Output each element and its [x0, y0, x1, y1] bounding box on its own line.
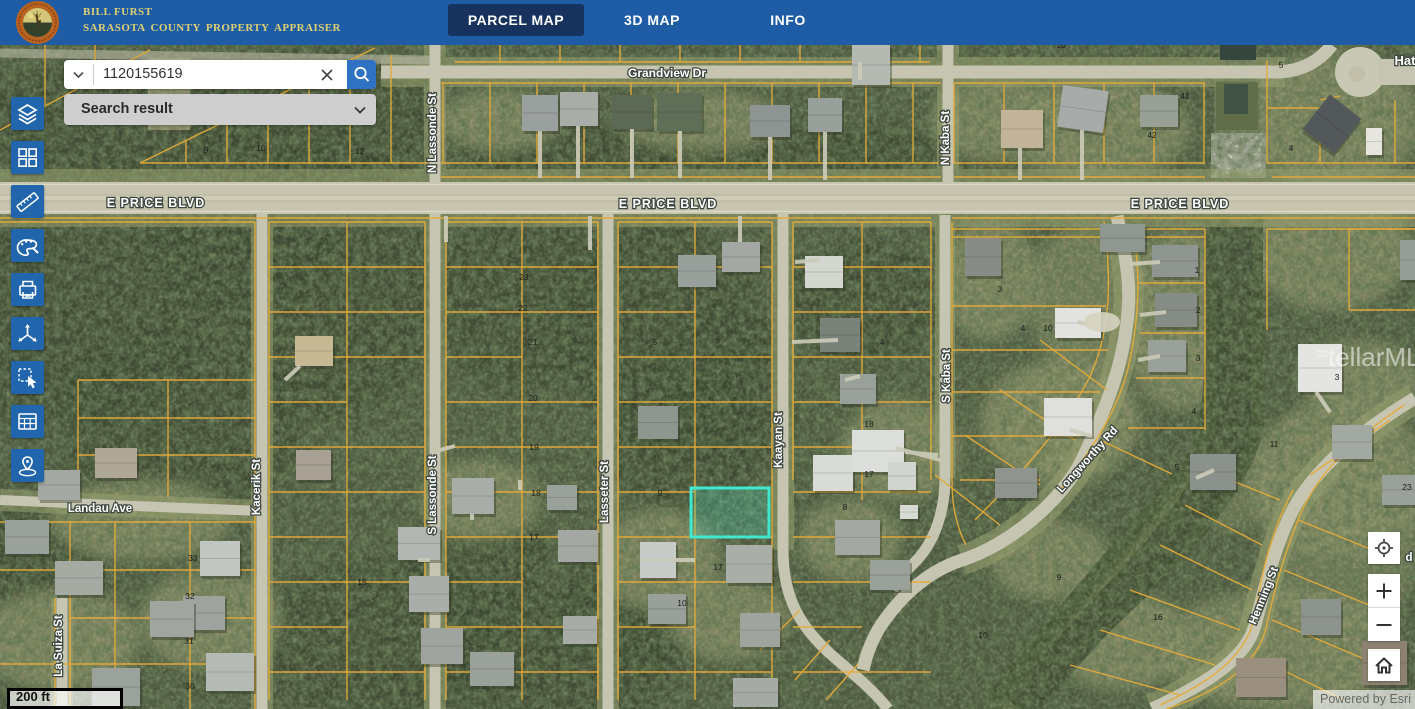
svg-text:E PRICE BLVD: E PRICE BLVD	[1131, 197, 1230, 211]
svg-text:3: 3	[1335, 372, 1340, 382]
svg-text:S Lassonde St: S Lassonde St	[427, 455, 439, 534]
svg-text:4: 4	[1192, 406, 1197, 416]
svg-text:8: 8	[843, 502, 848, 512]
svg-text:22: 22	[518, 303, 528, 313]
svg-text:E PRICE BLVD: E PRICE BLVD	[619, 197, 718, 211]
svg-text:5: 5	[1279, 60, 1284, 70]
svg-text:41: 41	[1180, 91, 1190, 101]
svg-text:2: 2	[1196, 305, 1201, 315]
svg-text:42: 42	[1147, 130, 1157, 140]
svg-text:9: 9	[1057, 572, 1062, 582]
svg-text:19: 19	[529, 442, 539, 452]
svg-text:3: 3	[998, 284, 1003, 294]
svg-text:18: 18	[531, 488, 541, 498]
svg-text:20: 20	[528, 393, 538, 403]
svg-text:Grandview Dr: Grandview Dr	[628, 66, 706, 80]
svg-text:S Kaba St: S Kaba St	[941, 349, 953, 403]
svg-text:La Suiza St: La Suiza St	[53, 615, 65, 677]
svg-text:Hat: Hat	[1395, 53, 1415, 68]
svg-text:Landau Ave: Landau Ave	[68, 503, 132, 515]
svg-text:3: 3	[1196, 353, 1201, 363]
svg-text:12: 12	[355, 146, 365, 156]
svg-text:1: 1	[1195, 265, 1200, 275]
svg-text:d: d	[1405, 552, 1412, 564]
svg-text:10: 10	[1056, 45, 1066, 50]
svg-text:23: 23	[1402, 482, 1412, 492]
svg-text:32: 32	[185, 591, 195, 601]
svg-text:17: 17	[713, 562, 723, 572]
svg-text:≈: ≈	[1317, 343, 1328, 365]
svg-text:10: 10	[978, 630, 988, 640]
svg-text:30: 30	[185, 681, 195, 691]
svg-text:16: 16	[1153, 612, 1163, 622]
svg-text:10: 10	[1043, 323, 1053, 333]
svg-text:17: 17	[864, 469, 874, 479]
svg-text:31: 31	[184, 636, 194, 646]
svg-text:11: 11	[1270, 439, 1279, 449]
svg-text:17: 17	[529, 532, 539, 542]
svg-text:10: 10	[677, 598, 687, 608]
svg-text:N Kaba St: N Kaba St	[940, 111, 952, 165]
svg-text:N Lassonde St: N Lassonde St	[427, 93, 439, 173]
svg-text:5: 5	[1175, 462, 1180, 472]
svg-text:33: 33	[188, 553, 198, 563]
svg-text:9: 9	[658, 488, 663, 498]
svg-text:21: 21	[528, 337, 538, 347]
svg-text:15: 15	[357, 577, 367, 587]
svg-text:tellarMLS: tellarMLS	[1328, 342, 1415, 372]
svg-text:E PRICE BLVD: E PRICE BLVD	[107, 196, 206, 210]
svg-text:9: 9	[204, 145, 209, 155]
svg-text:4: 4	[880, 337, 885, 347]
svg-text:10: 10	[256, 143, 266, 153]
svg-text:Kaayan St: Kaayan St	[773, 412, 785, 468]
svg-text:18: 18	[864, 419, 874, 429]
svg-text:Lasseter St: Lasseter St	[599, 461, 611, 523]
svg-text:5: 5	[653, 337, 658, 347]
svg-text:Kacerik St: Kacerik St	[251, 459, 263, 515]
svg-text:23: 23	[519, 272, 529, 282]
svg-text:4: 4	[1289, 143, 1294, 153]
svg-text:4: 4	[1021, 323, 1026, 333]
